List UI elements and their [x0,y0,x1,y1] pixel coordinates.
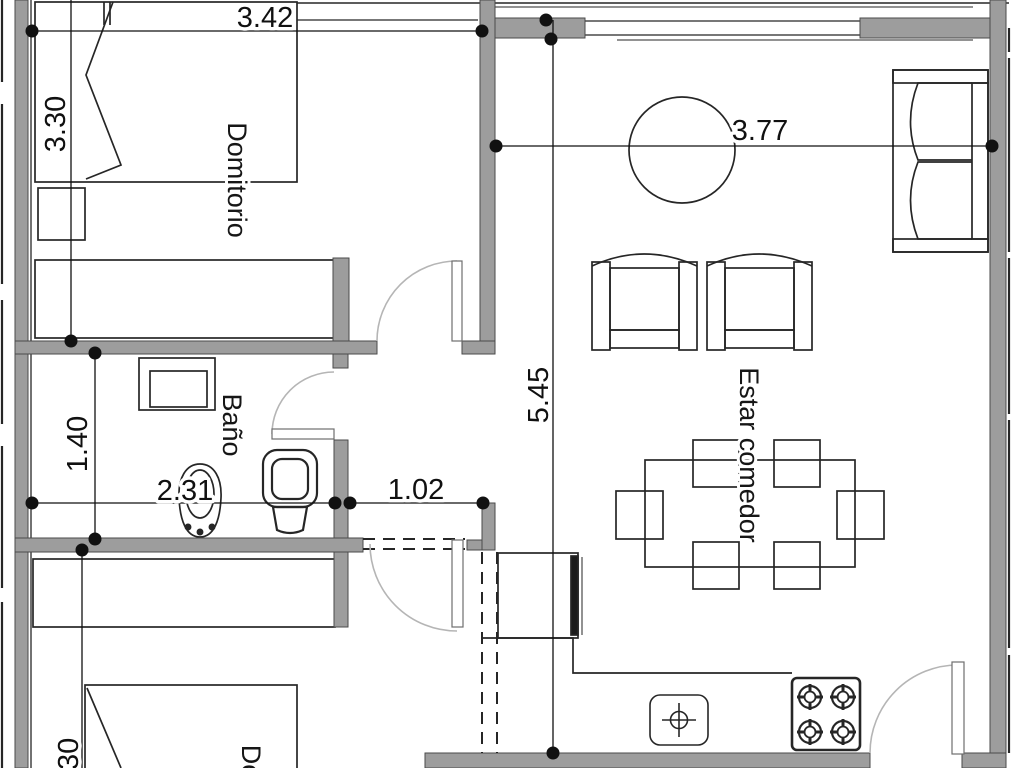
dim-dot [89,533,102,546]
dim-text-living-width: 3.77 [732,115,788,147]
wardrobe-bedroom1 [35,260,335,338]
walls [15,0,1006,768]
door-swing-arc-entry [870,665,958,753]
wall-right-exterior [990,0,1006,768]
door-leaf-bedroom2 [452,540,463,627]
room-label-living: Estar comedor [734,367,764,543]
dim-text-hall-width: 1.02 [388,474,444,506]
fridge [498,553,582,638]
wall-bottom-left-segment [425,753,870,768]
dim-dot [986,140,999,153]
room-label-bedroom1: Domitorio [222,122,252,238]
wall-hall-stub-upper [333,258,349,341]
room-label-bedroom2: Dormitorio [236,745,266,768]
kitchen-sink [650,695,708,745]
dim-dot [344,497,357,510]
round-table [629,97,735,203]
dining-chair [616,491,663,539]
labels: 3.42 3.30 3.77 5.45 1.40 2.31 1.02 3.30 … [40,2,788,768]
armchair-left [592,254,697,350]
dashed-openings [363,539,497,753]
dining-chair [774,542,820,589]
dim-dot [26,497,39,510]
toilet [263,450,317,533]
wall-left-exterior [15,0,28,768]
sofa-cushion [911,83,973,160]
dining-chair [693,440,739,487]
wall-center-foot [462,341,495,354]
dim-text-bedroom1-width: 3.42 [237,2,293,34]
burner-icon [797,719,823,745]
door-leaf-entry [952,662,964,754]
dining-chair [774,440,820,487]
armchair-right [707,254,812,350]
bathroom-sink [139,358,215,410]
wall-bathroom-door-stub [333,354,348,368]
nightstand-bedroom1 [38,188,85,240]
door-leaf-bathroom [272,429,334,439]
wall-bathroom-bottom [15,538,363,552]
door-leaf-bedroom1 [452,261,462,341]
wall-top-segment-right [860,18,990,38]
dim-dot [490,140,503,153]
dining-chair [837,491,884,539]
burner-icon [830,719,856,745]
door-swing-arc-bathroom [272,372,334,434]
wall-bottom-right-segment [962,753,1006,768]
dim-dot [476,25,489,38]
dim-dot [547,747,560,760]
door-swing-arc-bedroom2 [370,544,457,631]
room-label-bathroom: Baño [217,393,247,456]
structure-lines [2,0,1009,768]
dim-text-bedroom2-depth: 3.30 [53,738,85,768]
burner-icon [830,684,856,710]
floor-plan-canvas: 3.42 3.30 3.77 5.45 1.40 2.31 1.02 3.30 … [0,0,1024,768]
dim-dot [89,347,102,360]
dim-dot [545,33,558,46]
dim-dot [329,497,342,510]
furniture [33,2,988,768]
floor-plan-drawing: 3.42 3.30 3.77 5.45 1.40 2.31 1.02 3.30 … [0,0,1024,768]
stove [792,678,860,750]
dimension-endpoints [26,14,999,760]
wall-kitchen-corner-foot [467,540,482,550]
dim-dot [540,14,553,27]
dim-dot [65,335,78,348]
dim-dot [477,497,490,510]
door-swing-arc-bedroom1 [377,261,457,341]
sofa-cushion [911,162,973,239]
wall-kitchen-corner [482,503,495,550]
dim-dot [26,25,39,38]
sofa [893,70,988,252]
dim-text-bathroom-width: 2.31 [157,475,213,507]
dim-text-living-depth: 5.45 [523,367,555,423]
wall-center-vertical [480,0,495,341]
dim-dot [76,544,89,557]
dimension-lines [32,0,992,768]
dining-chair [693,542,739,589]
bed-blanket-fold [86,2,121,179]
dim-text-bedroom1-depth: 3.30 [40,96,72,152]
dim-text-bathroom-depth: 1.40 [62,416,94,472]
burner-icon [797,684,823,710]
wall-bathroom-right [334,440,348,627]
bed-blanket-fold [87,688,121,768]
kitchen-counter [482,638,792,673]
wardrobe-bedroom2 [33,559,335,627]
